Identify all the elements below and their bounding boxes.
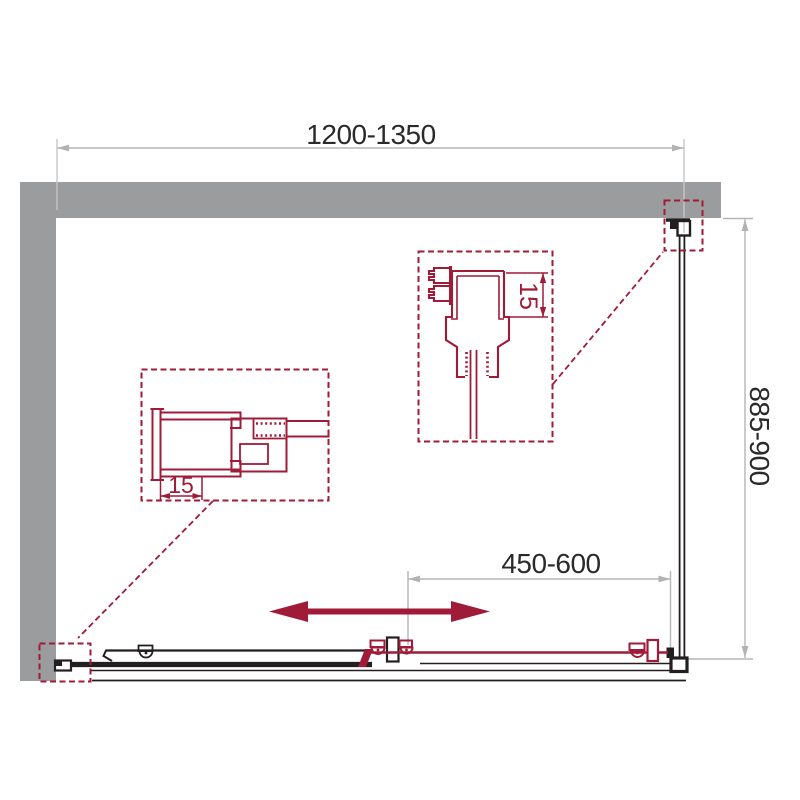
- callout-box-wall-profile-detail: [419, 252, 553, 442]
- roller-axle: [405, 649, 408, 652]
- wall-profile-detail: 15: [429, 266, 548, 439]
- depth-dimension-label: 885-900: [744, 386, 775, 485]
- top-rail: [161, 413, 241, 420]
- arrowhead-left: [408, 576, 420, 583]
- roller-bracket: [630, 644, 645, 651]
- door-overlap-detail: 15: [151, 409, 330, 500]
- roller-bracket: [400, 641, 413, 648]
- inner-step: [240, 444, 268, 464]
- guide-tab: [387, 638, 399, 662]
- roller-axle: [145, 652, 148, 655]
- glass-side-panel: [666, 220, 690, 672]
- wall-profile-block: [55, 661, 62, 667]
- arrowhead-right: [672, 145, 684, 152]
- walls: [20, 182, 721, 681]
- profile-inner: [451, 276, 504, 319]
- end-flange: [153, 409, 161, 480]
- door-travel-dimension-label: 450-600: [501, 548, 600, 579]
- roller-axle: [636, 652, 639, 655]
- comb-anchor: [429, 268, 450, 283]
- technical-drawing: 1200-1350 885-900 450-600: [0, 0, 800, 800]
- back-and-side-wall: [20, 182, 721, 681]
- double-arrow: [269, 601, 490, 622]
- page: 1200-1350 885-900 450-600: [0, 0, 800, 800]
- roller-axle: [377, 649, 380, 652]
- depth-dimension: 885-900: [688, 219, 775, 660]
- guide-tab: [648, 640, 659, 661]
- door-end-hook: [104, 651, 114, 662]
- arrowhead-down: [742, 646, 749, 658]
- detail-side-offset-label: 15: [168, 472, 194, 498]
- leader-line: [553, 252, 663, 384]
- slide-direction-arrow: [269, 601, 490, 622]
- door-travel-dimension: 450-600: [408, 548, 671, 648]
- comb-anchor: [429, 286, 450, 301]
- wall-clamp-block: [670, 220, 677, 229]
- leader-line: [78, 501, 213, 638]
- roller-bracket: [371, 641, 385, 648]
- arrowhead-right: [659, 576, 671, 583]
- detail-top-offset-label: 15: [514, 282, 542, 310]
- arrowhead-up: [742, 219, 749, 231]
- bottom-bracket: [671, 658, 687, 672]
- arrowhead-left: [57, 145, 69, 152]
- width-dimension-label: 1200-1350: [306, 119, 435, 150]
- arrowhead-right: [193, 493, 203, 499]
